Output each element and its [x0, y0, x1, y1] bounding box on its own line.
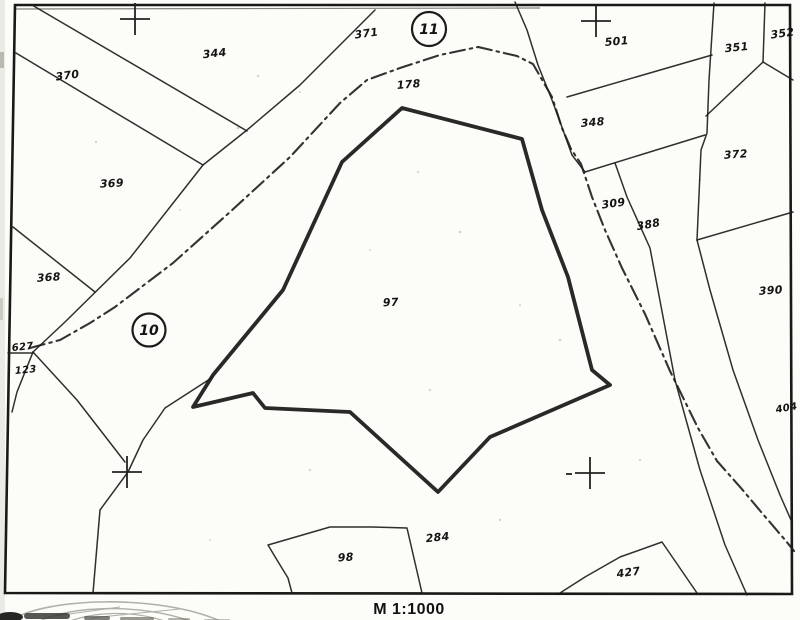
parcel-label-123: 123 [14, 364, 37, 377]
parcel-label-309: 309 [601, 195, 626, 211]
map-scale-label: M 1:1000 [373, 601, 445, 618]
parcel-boundaries-west-slivers [8, 352, 213, 593]
road-axis-dashdot-line [30, 47, 794, 551]
parcel-label-178: 178 [396, 77, 421, 92]
survey-cross-bottom-right [566, 457, 605, 489]
survey-cross-top-left [120, 3, 150, 35]
cadastral-map-canvas: 10 11 344 370 369 368 627 123 371 178 97… [0, 0, 800, 620]
parcel-label-369: 369 [100, 176, 125, 190]
parcel-label-371: 371 [354, 25, 379, 41]
parcel-label-98: 98 [337, 550, 354, 564]
parcel-label-351: 351 [724, 40, 749, 55]
sheet-marker-11-number: 11 [419, 22, 438, 38]
sheet-marker-10-number: 10 [139, 323, 159, 339]
survey-cross-top-right [581, 5, 611, 37]
parcel-97-heavy-boundary [193, 108, 610, 492]
parcel-label-627: 627 [11, 341, 34, 354]
parcel-label-284: 284 [425, 530, 450, 545]
parcel-label-501: 501 [604, 34, 629, 49]
parcel-label-352: 352 [770, 25, 795, 41]
scan-edge-noise [0, 0, 5, 620]
survey-cross-bottom-left [112, 456, 142, 488]
parcel-label-97: 97 [383, 296, 400, 310]
sheet-marker-11: 11 [412, 12, 446, 46]
parcel-label-427: 427 [615, 564, 641, 580]
parcel-boundaries-south [268, 527, 697, 593]
parcel-label-388: 388 [636, 216, 662, 233]
parcel-label-368: 368 [36, 270, 61, 285]
cadastral-map-sheet: 10 11 344 370 369 368 627 123 371 178 97… [0, 0, 800, 620]
parcel-label-344: 344 [202, 46, 227, 61]
parcel-label-372: 372 [723, 147, 748, 162]
parcel-label-370: 370 [55, 67, 80, 83]
parcel-label-348: 348 [580, 115, 605, 130]
sheet-marker-10: 10 [133, 314, 166, 347]
parcel-label-390: 390 [758, 283, 783, 298]
parcel-label-404: 404 [774, 401, 798, 416]
